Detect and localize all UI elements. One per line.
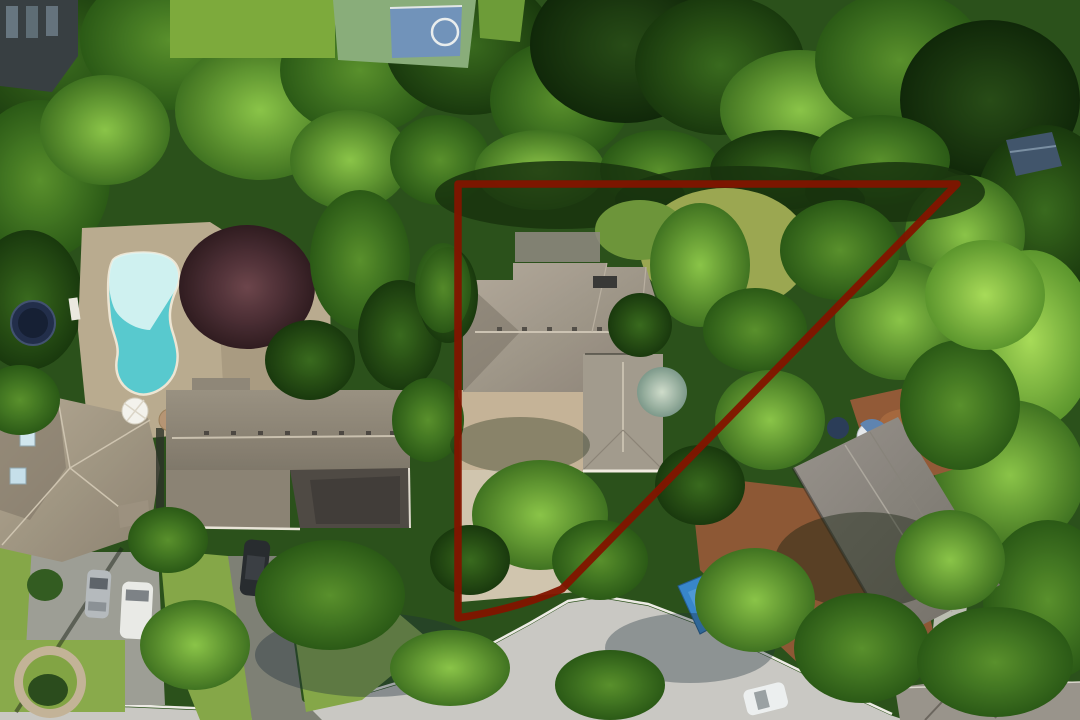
court-key [390,6,462,58]
tree [265,320,355,400]
gable-shadow [310,476,400,524]
tree [917,607,1073,717]
windshield [125,589,149,601]
silver-sedan [84,569,111,619]
tree [780,200,900,300]
tree [430,525,510,595]
trampoline-mat [18,308,48,338]
vent [572,327,577,331]
basketball-court [333,0,476,68]
car-body [84,569,111,619]
roof-panel [6,6,18,38]
tree [40,75,170,185]
tree [794,593,930,703]
vent [522,327,527,331]
shrub [27,569,63,601]
rear-patio [515,232,600,262]
tree [555,650,665,720]
tree [703,288,807,372]
vent [312,431,317,435]
vent [204,431,209,435]
aerial-photo-canvas [0,0,1080,720]
trampoline [11,301,55,345]
vent [366,431,371,435]
roof-step [192,378,250,392]
back-lawn [170,0,335,58]
dark-umbrella [827,417,849,439]
roof-panel [46,6,58,36]
tree [900,340,1020,470]
vent [497,327,502,331]
tree [255,540,405,650]
blue-spruce-tree [637,367,687,417]
tree [390,630,510,706]
vent [339,431,344,435]
tree [128,507,208,573]
tree [925,240,1045,350]
vent [231,431,236,435]
ranch-house [166,378,410,529]
rear-window [88,601,107,611]
windshield [89,577,108,589]
skylight [10,468,26,484]
planter-bush [28,674,68,706]
aerial-photo [0,0,1080,720]
gutter [409,468,410,528]
house-b-roof [166,390,410,470]
chimney [593,276,617,288]
stone-planter [14,646,86,718]
tree [895,510,1005,610]
tree [140,600,250,690]
lawn-sliver [478,0,525,42]
tree [415,243,471,333]
roof-panel [26,6,38,38]
vent [597,327,602,331]
vent [258,431,263,435]
tree [608,293,672,357]
vent [547,327,552,331]
vent [285,431,290,435]
